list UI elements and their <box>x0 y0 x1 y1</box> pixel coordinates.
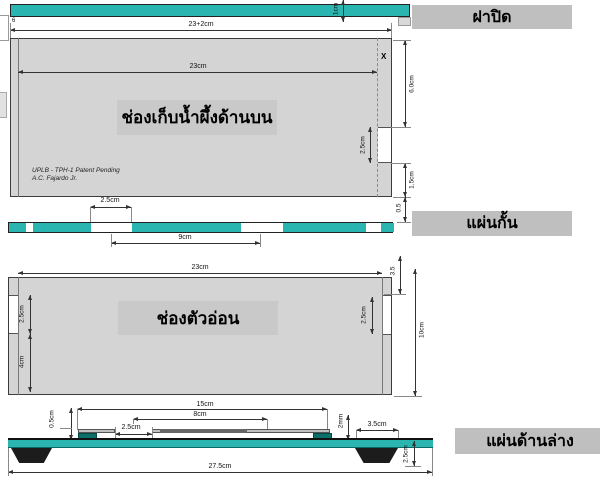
dim-label-left-notch: 2.5cm <box>19 305 26 323</box>
dim-label-leg-width: 3.5cm <box>367 421 386 428</box>
patent-line-1: UPLB - TPH-1 Patent Pending <box>32 167 120 175</box>
partition-segment <box>9 223 26 232</box>
dim-line <box>111 243 260 244</box>
partition-segment <box>33 223 91 232</box>
dim-label-notch: 2.5cm <box>360 136 367 154</box>
ext-line <box>384 294 406 295</box>
ext-line <box>432 448 433 476</box>
honey-chamber-label-text: ช่องเก็บน้ำผึ้งด้านบน <box>122 104 273 131</box>
dim-label-leg-height: 2.5cm <box>403 445 410 463</box>
part-label-lid: ฝาปิด <box>412 5 572 29</box>
dim-label-brood-height: 10cm <box>419 322 426 338</box>
dim-line <box>77 409 327 410</box>
dim-line <box>133 419 267 420</box>
dim-line <box>356 430 398 431</box>
part-label-partition-text: แผ่นกั้น <box>466 211 517 236</box>
ext-line <box>397 222 411 223</box>
ext-line <box>60 428 72 429</box>
dim-line <box>30 334 31 392</box>
dim-line <box>8 472 432 473</box>
ext-line <box>77 409 78 430</box>
bottom-board-bar <box>8 438 433 448</box>
dim-line <box>370 127 371 163</box>
brood-chamber-label-text: ช่องตัวอ่อน <box>157 305 240 332</box>
dim-label-entrance: 2.5cm <box>120 424 141 431</box>
dim-line <box>405 40 406 127</box>
dim-line <box>405 197 406 222</box>
honey-chamber-label: ช่องเก็บน้ำผึ้งด้านบน <box>117 100 277 135</box>
inner-edge-line <box>18 277 19 395</box>
ext-line <box>10 23 11 38</box>
dim-line <box>400 256 401 294</box>
dim-line <box>372 297 373 334</box>
lid-edge-mark: 6 <box>12 18 15 24</box>
dim-label-bars-span: 15cm <box>196 401 213 408</box>
dim-line <box>115 434 152 435</box>
dim-label-brood-width: 23cm <box>191 264 208 271</box>
part-label-bottom-sheet: แผ่นด้านล่าง <box>455 428 600 454</box>
dim-label-gap: 0.5 <box>396 203 403 212</box>
edge-piece <box>0 92 7 118</box>
dim-label-right-upper: 3.5 <box>390 266 397 275</box>
ext-line <box>393 40 411 41</box>
brood-chamber-panel <box>8 277 392 395</box>
ext-line <box>405 466 421 467</box>
dim-label-bar-height: 0.5cm <box>49 410 56 428</box>
board-leg <box>355 448 398 463</box>
dim-line <box>405 163 406 197</box>
ext-line <box>391 23 392 38</box>
lid-end-tab <box>398 17 411 26</box>
part-label-partition: แผ่นกั้น <box>412 211 572 236</box>
ext-line <box>111 234 112 247</box>
dim-line <box>414 441 415 466</box>
brood-chamber-label: ช่องตัวอ่อน <box>118 301 278 335</box>
dim-line <box>18 273 382 274</box>
partition-segment <box>381 223 394 232</box>
lid-thickness-label: 1cm <box>333 3 340 15</box>
dim-line <box>18 72 377 73</box>
dim-line <box>71 408 72 440</box>
dim-line <box>10 30 392 31</box>
part-label-lid-text: ฝาปิด <box>473 5 512 30</box>
ext-line <box>260 234 261 247</box>
patent-note: UPLB - TPH-1 Patent Pending A.C. Fajardo… <box>32 167 120 183</box>
ext-line <box>131 207 132 222</box>
partition-bar <box>8 222 393 233</box>
brood-left-notch <box>9 295 18 334</box>
dim-label-right-upper: 6.0cm <box>409 75 416 93</box>
patent-line-2: A.C. Fajardo Jr. <box>32 175 120 183</box>
ext-line <box>394 396 422 397</box>
inner-edge-line <box>18 38 19 197</box>
edge-piece <box>0 15 9 41</box>
dim-label-inner-width: 23cm <box>189 63 206 70</box>
partition-segment <box>283 223 366 232</box>
partition-segment <box>132 223 241 232</box>
dim-label-total-width: 27.5cm <box>209 463 232 470</box>
ext-line <box>391 127 411 128</box>
dim-label-right-notch: 2.5cm <box>361 306 368 324</box>
dim-line <box>348 415 349 440</box>
ext-line <box>393 197 411 198</box>
brood-right-notch <box>383 295 391 335</box>
top-bar-rail-dark <box>160 429 247 433</box>
part-label-bottom-sheet-text: แผ่นด้านล่าง <box>486 429 574 454</box>
dim-line <box>30 295 31 334</box>
dim-label-right-lower: 1.5cm <box>409 171 416 189</box>
board-leg <box>11 448 52 463</box>
ext-line <box>8 448 9 476</box>
ext-line <box>391 163 411 164</box>
dim-line <box>415 269 416 396</box>
lid-thickness-dim-line <box>343 0 344 22</box>
honey-right-notch <box>378 127 391 163</box>
lid-bar <box>10 4 410 17</box>
dim-label-slot-width: 2.5cm <box>100 197 119 204</box>
x-marker: X <box>381 52 386 61</box>
dim-label-slot-spacing: 9cm <box>178 234 191 241</box>
ext-line <box>90 207 91 222</box>
dim-label-outer-width: 23+2cm <box>188 21 213 28</box>
dim-label-left-lower: 4cm <box>19 356 26 368</box>
dim-line <box>90 207 131 208</box>
inner-edge-line <box>377 38 378 197</box>
dim-label-strip-thickness: 2mm <box>338 414 345 428</box>
dim-label-inner-span: 8cm <box>193 411 206 418</box>
hive-parts-diagram: 1cm 6 ฝาปิด 23+2cm 23cm X 6.0cm 2.5cm 1.… <box>0 0 600 478</box>
